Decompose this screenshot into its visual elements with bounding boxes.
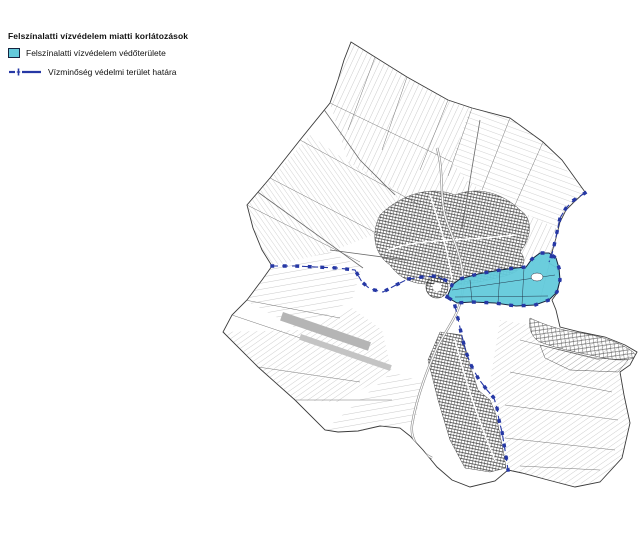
legend-item-protected-area: Felszínalatti vízvédelem védőterülete [8,48,188,58]
protected-area-swatch-icon [8,48,20,58]
boundary-line-icon [8,67,42,77]
map-page: Felszínalatti vízvédelem miatti korlátoz… [0,0,642,541]
legend-title: Felszínalatti vízvédelem miatti korlátoz… [8,31,188,41]
legend-item-quality-boundary: Vízminőség védelmi terület határa [8,67,188,77]
legend-item-label: Felszínalatti vízvédelem védőterülete [26,48,166,58]
legend-item-label: Vízminőség védelmi terület határa [48,67,177,77]
legend: Felszínalatti vízvédelem miatti korlátoz… [8,31,188,86]
